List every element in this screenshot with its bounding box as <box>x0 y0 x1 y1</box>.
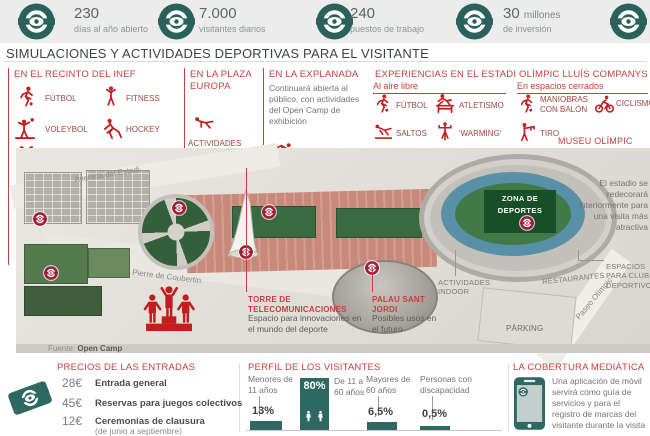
palau-body: Posibles usos en el futuro <box>372 313 442 334</box>
bar-value: 80% <box>300 380 329 392</box>
logo-icon <box>456 3 493 40</box>
parking-lot <box>477 287 576 351</box>
open-camp-marker-icon <box>262 205 276 219</box>
stat-days: 230 días al año abierto <box>74 6 148 34</box>
connector-line <box>372 268 373 292</box>
voleybol-icon <box>13 117 37 140</box>
stadium-note: El estadio se redecorará interiormente p… <box>574 178 648 233</box>
section-title-estadi: EXPERIENCIAS EN EL ESTADI OLÍMPIC LLUÍS … <box>375 69 648 80</box>
bar-label: Menores de 11 años <box>248 374 294 396</box>
logo-icon <box>18 3 55 40</box>
sport-label: FITNESS <box>126 94 160 104</box>
price-label: Reservas para juegos colectivos <box>95 398 242 409</box>
bar-menores <box>250 421 282 430</box>
page-title: SIMULACIONES Y ACTIVIDADES DEPORTIVAS PA… <box>6 46 429 61</box>
logo-icon <box>316 3 353 40</box>
bar-value: 0,5% <box>422 408 447 420</box>
map-label-espacios: ESPACIOS PARA CLUBS DEPORTIVOS <box>606 262 650 290</box>
perfil-title: PERFIL DE LOS VISITANTES <box>248 362 381 373</box>
museu-title: MUSEU OLÍMPIC <box>558 136 633 146</box>
balon-icon <box>517 93 537 114</box>
fitness-icon <box>100 85 122 108</box>
source-name: Open Camp <box>77 344 122 353</box>
source: Fuente: Open Camp <box>48 344 122 353</box>
atletismo-icon <box>434 93 456 114</box>
pushup-icon <box>188 110 220 132</box>
torre-body: Espacio para innovaciones en el mundo de… <box>248 313 366 334</box>
bar-value: 6,5% <box>368 406 393 418</box>
open-camp-marker-icon <box>520 216 534 230</box>
divider <box>4 61 646 62</box>
person-icon <box>315 404 326 428</box>
stat-visitors: 7.000 visitantes diarios <box>199 6 266 34</box>
stat-value-suffix: millones <box>524 10 561 21</box>
person-icon <box>303 404 314 428</box>
stat-value: 240 <box>350 6 424 23</box>
sport-label: 'WARMING' <box>459 129 501 139</box>
logo-icon <box>158 3 195 40</box>
futbol-icon <box>16 85 38 108</box>
sports-field <box>24 286 102 316</box>
precios-title: PRECIOS DE LAS ENTRADAS <box>57 362 195 373</box>
price-note: (de junio a septiembre) <box>95 426 182 436</box>
price-value: 45€ <box>62 396 82 410</box>
hockey-icon <box>100 117 124 140</box>
pointer-line <box>455 250 456 276</box>
price-value: 12€ <box>62 414 82 428</box>
bar-value: 13% <box>252 405 274 417</box>
open-camp-marker-icon <box>33 212 47 226</box>
open-camp-marker-icon <box>172 201 186 215</box>
bar-label: Mayores de 60 años <box>366 374 416 396</box>
bar-mayores <box>367 422 397 430</box>
stat-investment: 30 millones de inversión <box>503 6 561 34</box>
stat-value: 30 <box>503 5 520 22</box>
cobertura-body: Una aplicación de móvil servirá como guí… <box>552 376 649 431</box>
divider <box>508 364 509 432</box>
sport-label: SALTOS <box>396 129 427 139</box>
map-label-parking: PÀRKING <box>506 324 543 334</box>
esplanade-court <box>336 208 422 238</box>
phone-icon <box>513 376 546 431</box>
sport-label: TIRO <box>540 129 559 139</box>
price-value: 28€ <box>62 376 82 390</box>
pointer-line <box>578 250 579 260</box>
sport-label: CICLISMO <box>616 99 650 109</box>
tiro-icon <box>517 121 538 142</box>
infographic-open-camp: 230 días al año abierto 7.000 visitantes… <box>0 0 650 436</box>
saltos-icon <box>372 121 395 141</box>
price-label: Entrada general <box>95 378 167 389</box>
bar-label: De 11 a 60 años <box>334 376 366 398</box>
futbol-icon <box>373 93 393 114</box>
stat-label: puestos de trabajo <box>350 24 424 34</box>
open-camp-marker-icon <box>44 266 58 280</box>
sports-field <box>88 248 130 278</box>
bar-discapacidad <box>420 426 450 430</box>
bar-label: Personas con discapacidad <box>420 374 482 396</box>
connector-line <box>8 68 9 265</box>
sport-label: FÚTBOL <box>45 94 77 104</box>
sport-label: ATLETISMO <box>459 101 504 111</box>
ticket-icon <box>6 374 54 422</box>
connector-line <box>246 168 247 292</box>
chart-baseline <box>246 430 502 431</box>
stat-value: 7.000 <box>199 6 266 23</box>
sport-label: HOCKEY <box>126 125 160 135</box>
sport-label: VOLEYBOL <box>45 125 88 135</box>
sport-label: MANIOBRAS CON BALÓN <box>540 95 588 115</box>
stat-label: días al año abierto <box>74 24 148 34</box>
ciclismo-icon <box>592 94 617 114</box>
section-title-plaza: EN LA PLAZA EUROPA <box>190 69 252 93</box>
sport-label: FÚTBOL <box>396 101 428 111</box>
stat-label: visitantes diarios <box>199 24 266 34</box>
podium-icon <box>140 284 198 332</box>
stat-jobs: 240 puestos de trabajo <box>350 6 424 34</box>
stat-label: de inversión <box>503 24 561 34</box>
section-title-inef: EN EL RECINTO DEL INEF <box>14 69 136 80</box>
connector-line <box>263 68 264 150</box>
stat-value: 230 <box>74 6 148 23</box>
open-camp-logo-icon <box>610 3 647 40</box>
section-title-explanada: EN LA EXPLANADA <box>269 69 359 80</box>
explanada-body: Continuará abierta al público, con activ… <box>269 83 364 127</box>
cobertura-title: LA COBERTURA MEDIÁTICA <box>513 362 644 373</box>
map-label-indoor: ACTIVIDADES INDOOR <box>438 278 494 297</box>
warming-icon <box>435 121 455 142</box>
pointer-line <box>578 260 604 261</box>
source-label: Fuente: <box>48 344 75 353</box>
